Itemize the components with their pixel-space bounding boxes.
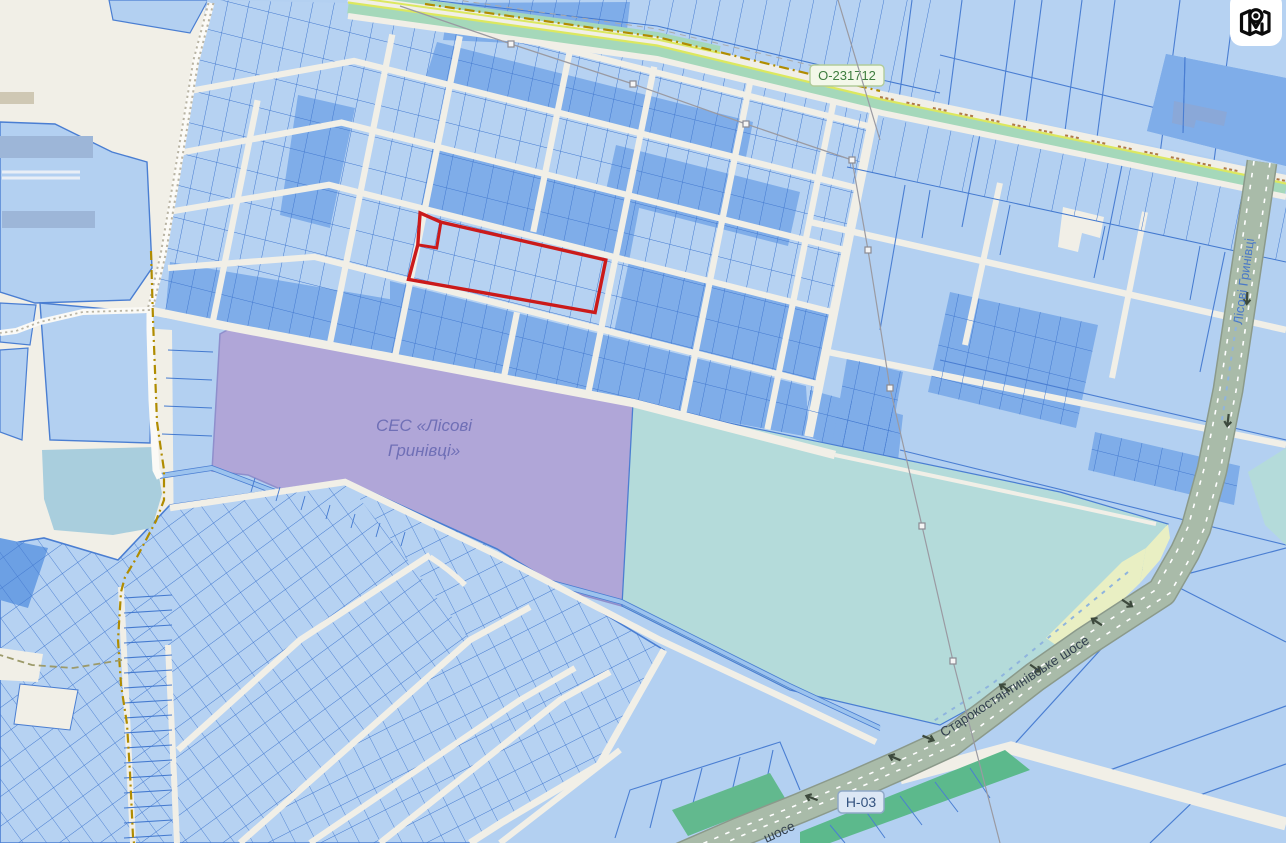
- svg-text:Гринівці»: Гринівці»: [388, 441, 460, 460]
- svg-text:СЕС «Лісові: СЕС «Лісові: [376, 416, 473, 435]
- svg-text:О-231712: О-231712: [818, 68, 876, 83]
- svg-text:Н-03: Н-03: [846, 794, 877, 810]
